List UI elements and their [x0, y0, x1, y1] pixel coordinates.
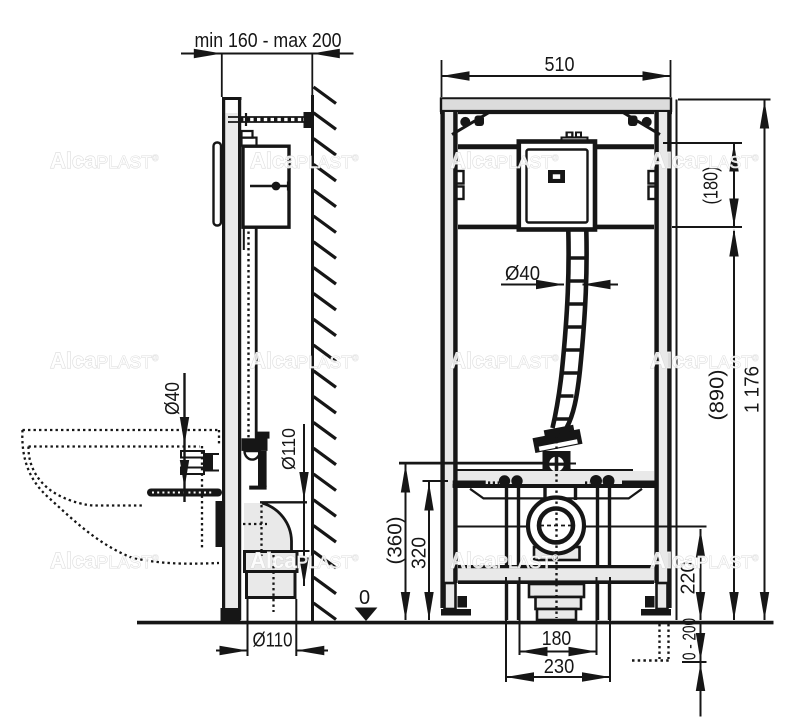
svg-text:320: 320	[408, 537, 430, 569]
svg-text:AlcaPLAST®: AlcaPLAST®	[250, 148, 359, 173]
svg-text:0: 0	[359, 587, 370, 609]
svg-text:AlcaPLAST®: AlcaPLAST®	[450, 348, 559, 373]
svg-text:AlcaPLAST®: AlcaPLAST®	[50, 148, 159, 173]
svg-text:510: 510	[545, 54, 575, 76]
svg-text:(360): (360)	[385, 517, 407, 565]
svg-text:180: 180	[542, 628, 572, 650]
svg-text:(180): (180)	[701, 167, 723, 205]
svg-text:Ø110: Ø110	[253, 630, 293, 652]
svg-text:0 - 200: 0 - 200	[680, 618, 700, 660]
svg-text:AlcaPLAST®: AlcaPLAST®	[250, 348, 359, 373]
svg-text:AlcaPLAST®: AlcaPLAST®	[650, 348, 759, 373]
svg-text:AlcaPLAST®: AlcaPLAST®	[450, 148, 559, 173]
svg-text:(890): (890)	[707, 370, 729, 421]
svg-text:Ø110: Ø110	[278, 428, 299, 470]
svg-text:AlcaPLAST®: AlcaPLAST®	[50, 348, 159, 373]
svg-text:Ø40: Ø40	[505, 263, 540, 285]
svg-text:AlcaPLAST®: AlcaPLAST®	[50, 548, 159, 573]
svg-text:1 176: 1 176	[742, 366, 764, 413]
svg-text:Ø40: Ø40	[162, 382, 184, 415]
svg-text:min 160 - max 200: min 160 - max 200	[195, 30, 342, 52]
svg-text:AlcaPLAST®: AlcaPLAST®	[650, 148, 759, 173]
svg-text:AlcaPLAST®: AlcaPLAST®	[450, 548, 559, 573]
svg-text:AlcaPLAST®: AlcaPLAST®	[650, 548, 759, 573]
svg-text:AlcaPLAST®: AlcaPLAST®	[250, 548, 359, 573]
svg-text:230: 230	[544, 656, 575, 678]
